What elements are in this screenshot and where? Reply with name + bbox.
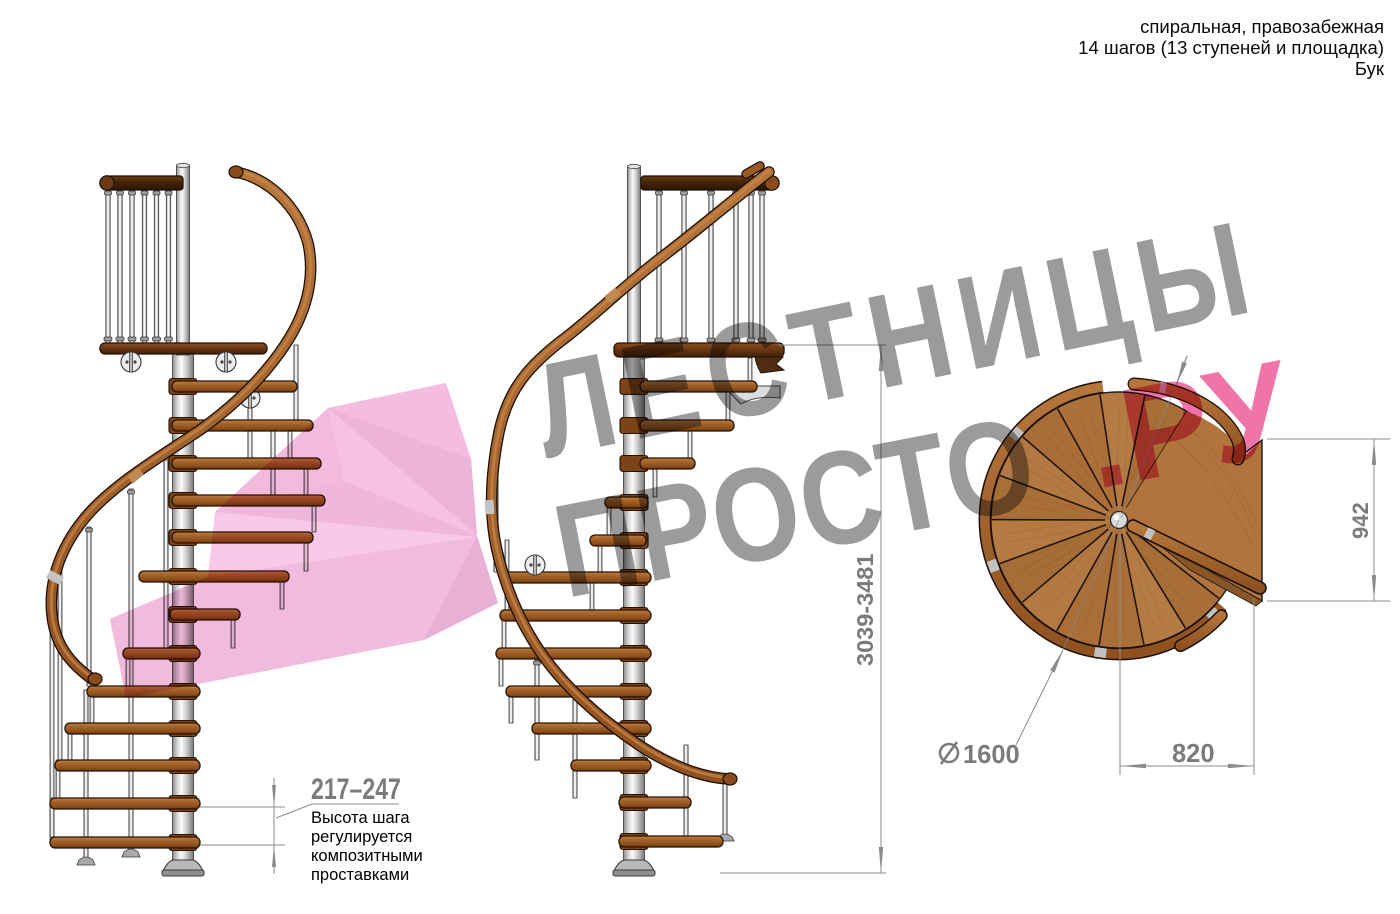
svg-text:1600: 1600: [963, 741, 1020, 769]
svg-text:проставками: проставками: [311, 866, 409, 884]
svg-text:14 шагов (13 ступеней и площад: 14 шагов (13 ступеней и площадка): [1078, 37, 1384, 58]
svg-text:217–247: 217–247: [311, 772, 401, 806]
svg-text:942: 942: [1348, 502, 1373, 539]
svg-text:регулируется: регулируется: [311, 828, 412, 846]
svg-text:Высота шага: Высота шага: [311, 809, 410, 827]
svg-text:Бук: Бук: [1355, 58, 1385, 79]
svg-text:820: 820: [1172, 740, 1215, 768]
svg-text:спиральная, правозабежная: спиральная, правозабежная: [1140, 16, 1384, 37]
svg-text:композитными: композитными: [311, 847, 423, 865]
